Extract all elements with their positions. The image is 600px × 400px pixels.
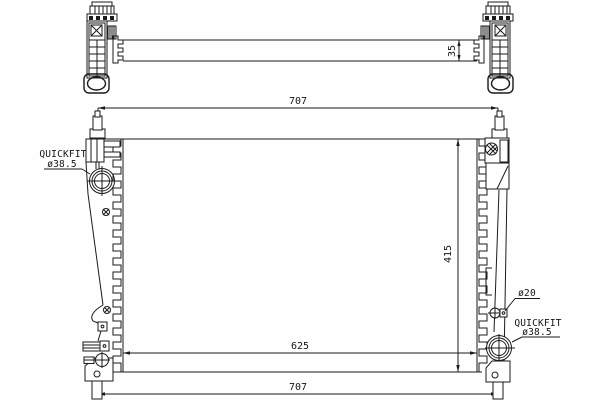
leader-line (505, 299, 515, 312)
front-view: 707 415 (39, 96, 561, 399)
leader-line (512, 337, 522, 342)
dim-height-value: 415 (443, 245, 454, 263)
dim-top-width-value: 707 (289, 96, 307, 107)
mount-pin-top-right (495, 116, 504, 130)
small-port-icon (488, 307, 507, 319)
clip-square-icon (100, 341, 109, 351)
cap-top-icon (488, 2, 508, 6)
top-view-right-tank (474, 2, 513, 93)
front-left-tank (83, 111, 120, 381)
core-outline (104, 139, 492, 372)
left-serrated-edge (113, 139, 121, 372)
serrated-connector-icon (474, 36, 484, 63)
dim-top-width: 707 (98, 96, 498, 117)
label-left-quickfit: QUICKFIT ø38.5 (39, 149, 90, 174)
quickfit-fitting-right-icon (485, 334, 515, 362)
dim-height: 415 (443, 139, 460, 372)
top-view-core-strip (123, 40, 477, 61)
top-view-left-tank (84, 2, 123, 93)
hose-curve (92, 305, 103, 323)
dim-core-depth: 35 (447, 40, 461, 61)
cap-top-icon (92, 2, 112, 6)
radiator-technical-drawing: 35 707 415 (0, 0, 600, 400)
dim-core-width: 625 (123, 341, 477, 355)
front-right-tank (485, 111, 515, 382)
drawing-canvas: 35 707 415 (0, 0, 600, 400)
mount-pin-bottom-left (92, 381, 102, 399)
serrated-connector-icon (113, 36, 123, 63)
inlet-connector-icon (86, 139, 104, 162)
tank-outer-edge (504, 189, 507, 362)
dim-bottom-width-value: 707 (289, 382, 307, 393)
right-quickfit-diameter: ø38.5 (522, 327, 552, 338)
mount-pin-bottom-right (493, 382, 503, 399)
mount-pin-top-left (93, 116, 102, 130)
dim-bottom-width: 707 (98, 382, 498, 396)
top-view: 35 (84, 2, 513, 93)
label-right-small-port: ø20 (505, 288, 540, 311)
sensor-boss-icon (104, 307, 111, 314)
left-quickfit-diameter: ø38.5 (47, 159, 77, 170)
dim-core-depth-value: 35 (447, 45, 458, 57)
bottom-bracket-right (486, 361, 510, 382)
dim-core-width-value: 625 (291, 341, 309, 352)
label-right-quickfit: QUICKFIT ø38.5 (512, 318, 562, 342)
right-small-port-text: ø20 (518, 288, 536, 299)
bleed-valve-icon (103, 209, 110, 216)
clip-square-icon (98, 322, 107, 331)
tank-shoulder-plate (486, 163, 509, 189)
ribbed-connector-icon (83, 342, 102, 351)
